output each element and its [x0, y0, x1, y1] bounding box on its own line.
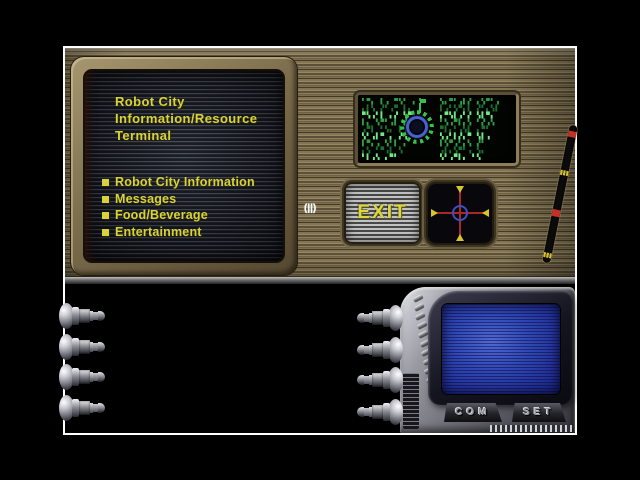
vent-slot-icon	[418, 330, 429, 338]
menu-item-label: Robot City Information	[115, 175, 255, 189]
bullet-icon	[102, 229, 109, 236]
crosshair-tip-icon	[431, 209, 438, 217]
noise-line: ▘▌▗▚ ▖▀▘	[362, 154, 434, 160]
noise-line: ▗▌▖▚▀▘▗ ▚▖	[440, 147, 512, 154]
connector-knob	[59, 363, 107, 391]
noise-line: ▘▚▗▀▌▖▚ ▘▞▗▚	[440, 119, 512, 126]
gauge-marker-red	[568, 130, 577, 137]
radar-dial	[402, 112, 432, 142]
menu-item[interactable]: Robot City Information	[102, 176, 255, 189]
terminal-menu: Robot City Information Messages Food/Bev…	[102, 176, 255, 242]
connector-knob	[355, 398, 403, 426]
menu-item-label: Food/Beverage	[115, 208, 208, 222]
noise-line: ▖▚ ▘▀▗▌ ▚	[362, 147, 434, 154]
menu-item-label: Entertainment	[115, 225, 202, 239]
connector-knob	[355, 304, 403, 332]
device-screen	[442, 304, 560, 394]
menu-item[interactable]: Messages	[102, 193, 255, 206]
gauge-marker-red	[551, 209, 560, 217]
crosshair-tip-icon	[482, 209, 489, 217]
com-button[interactable]: COM	[444, 403, 502, 422]
menu-item[interactable]: Entertainment	[102, 226, 255, 239]
noise-line: ▌▗▘▚▀▖▌ ▞▘▖▚▌	[440, 105, 512, 112]
gauge-marker-yellow	[543, 252, 552, 258]
connector-knob	[355, 366, 403, 394]
connector-knob	[59, 302, 107, 330]
connector-knob	[59, 394, 107, 422]
device-rib-panel	[403, 373, 419, 429]
dial-flag-icon	[419, 103, 421, 113]
panel-bottom-edge	[65, 277, 575, 284]
set-button[interactable]: SET	[512, 403, 566, 422]
noise-line: ▖▀▚▌▗▘▞ ▚▌▀▖	[440, 112, 512, 119]
menu-item-label: Messages	[115, 192, 176, 206]
noise-line: ▀▌▖▘▗▚▌ ▖▀▘	[440, 126, 512, 133]
game-screen: Robot CityInformation/ResourceTerminal R…	[0, 0, 640, 480]
crosshair-tip-icon	[456, 234, 464, 241]
comm-device: COM SET	[400, 287, 575, 433]
device-screen-bezel	[428, 291, 572, 405]
vent-slot-icon	[417, 321, 428, 329]
dial-ring-icon	[406, 116, 428, 138]
bullet-icon	[102, 196, 109, 203]
vent-slot-icon	[415, 312, 426, 320]
connector-knob	[355, 336, 403, 364]
device-bottom-ribs	[490, 425, 572, 432]
gauge-marker-yellow	[560, 170, 569, 176]
vent-slot-icon	[413, 294, 424, 302]
noise-line: ▌▚▀▗▘▖▚ ▞▘	[440, 140, 512, 147]
noise-line: ▚▖▀▘▗▌▞ ▖▚▀▘▗	[440, 98, 512, 105]
terminal-monitor: Robot CityInformation/ResourceTerminal R…	[70, 56, 298, 276]
menu-item[interactable]: Food/Beverage	[102, 209, 255, 222]
crosshair-tip-icon	[456, 186, 464, 193]
bullet-icon	[102, 212, 109, 219]
terminal-title: Robot CityInformation/ResourceTerminal	[115, 93, 257, 144]
data-column-right: ▚▖▀▘▗▌▞ ▖▚▀▘▗▌▗▘▚▀▖▌ ▞▘▖▚▌▖▀▚▌▗▘▞ ▚▌▀▖▘▚…	[440, 98, 512, 160]
data-readout-screen: ▘▀▖ ▌▗ ▀▚▘ ▖▝▖▌▚ ▞▘▗▀ ▌▖▀▚▗▘▌ ▖▞ ▚▀▌▖ ▚▀…	[355, 92, 519, 166]
terminal-screen: Robot CityInformation/ResourceTerminal R…	[83, 69, 285, 263]
crosshair-center-ring	[452, 205, 468, 221]
noise-line: ▚▗▘▌▞▖▀ ▚▌▗	[440, 133, 512, 140]
terminal-title-line: Terminal	[115, 127, 257, 144]
bullet-icon	[102, 179, 109, 186]
connector-knob	[59, 333, 107, 361]
exit-button[interactable]: EXIT	[344, 182, 421, 244]
terminal-title-line: Information/Resource	[115, 110, 257, 127]
vent-slot-icon	[414, 303, 425, 311]
exit-button-label: EXIT	[357, 202, 407, 224]
noise-line: ▚▘▗▀▌▖ ▘▚	[440, 154, 512, 160]
terminal-title-line: Robot City	[115, 93, 257, 110]
cursor-icon: (||)	[304, 203, 316, 214]
targeting-display	[426, 182, 494, 245]
